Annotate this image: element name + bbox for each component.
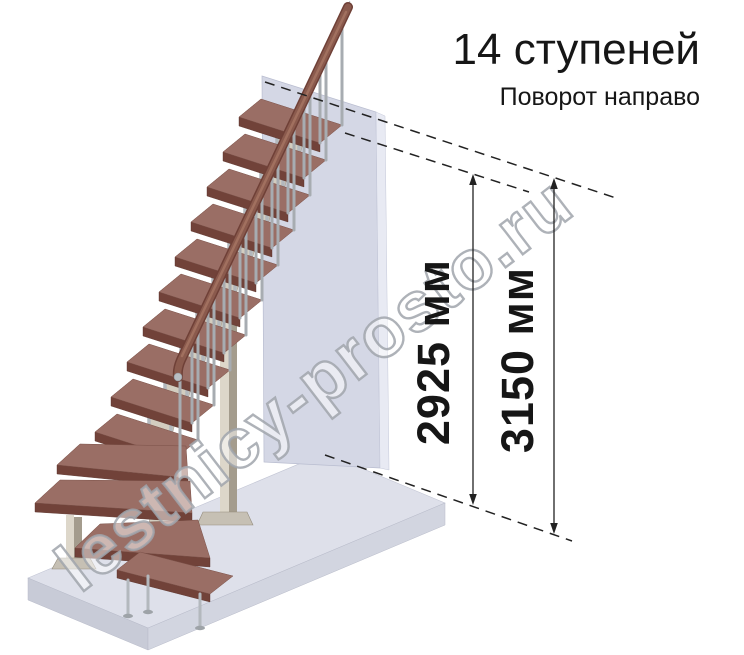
dimension-label-3150: 3150 мм: [492, 267, 543, 453]
staircase-illustration: lestnicy-prosto.ru 2925 мм 3150 мм 14 ст…: [0, 0, 744, 655]
dimension-label-2925: 2925 мм: [408, 259, 459, 445]
page-title: 14 ступеней: [453, 25, 700, 74]
arrowhead-down: [550, 523, 558, 534]
leg-foot: [123, 614, 133, 618]
arrowhead-down: [469, 494, 477, 505]
handrail-end-cap: [174, 373, 182, 381]
page-subtitle: Поворот направо: [500, 83, 700, 111]
leg-foot: [143, 610, 153, 614]
stair-diagram-canvas: lestnicy-prosto.ru 2925 мм 3150 мм 14 ст…: [0, 0, 744, 655]
leg-foot: [195, 626, 205, 630]
